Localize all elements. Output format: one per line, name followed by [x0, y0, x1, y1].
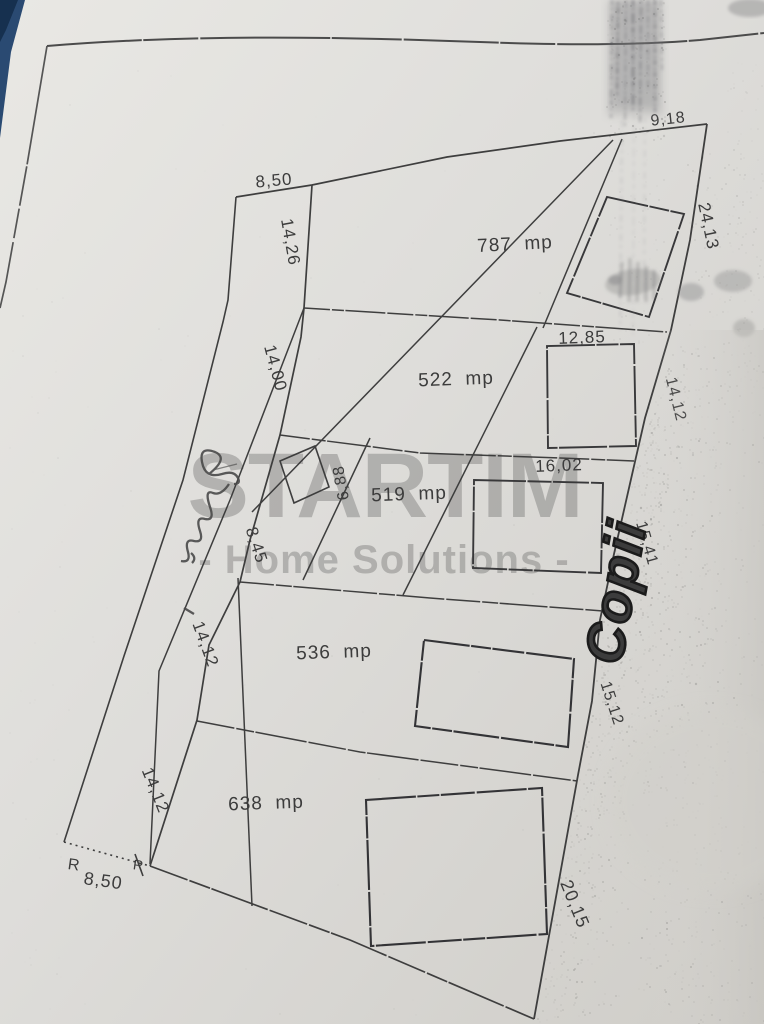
svg-text:STARTIM: STARTIM	[187, 435, 582, 537]
svg-text:536 mp: 536 mp	[296, 641, 372, 665]
svg-text:R: R	[67, 856, 81, 874]
svg-text:8,50: 8,50	[255, 169, 294, 191]
svg-text:787 mp: 787 mp	[477, 232, 554, 257]
svg-text:- Home Solutions -: - Home Solutions -	[198, 538, 569, 582]
svg-text:12,85: 12,85	[558, 327, 606, 348]
svg-text:638 mp: 638 mp	[228, 792, 304, 816]
svg-text:522 mp: 522 mp	[418, 368, 494, 392]
